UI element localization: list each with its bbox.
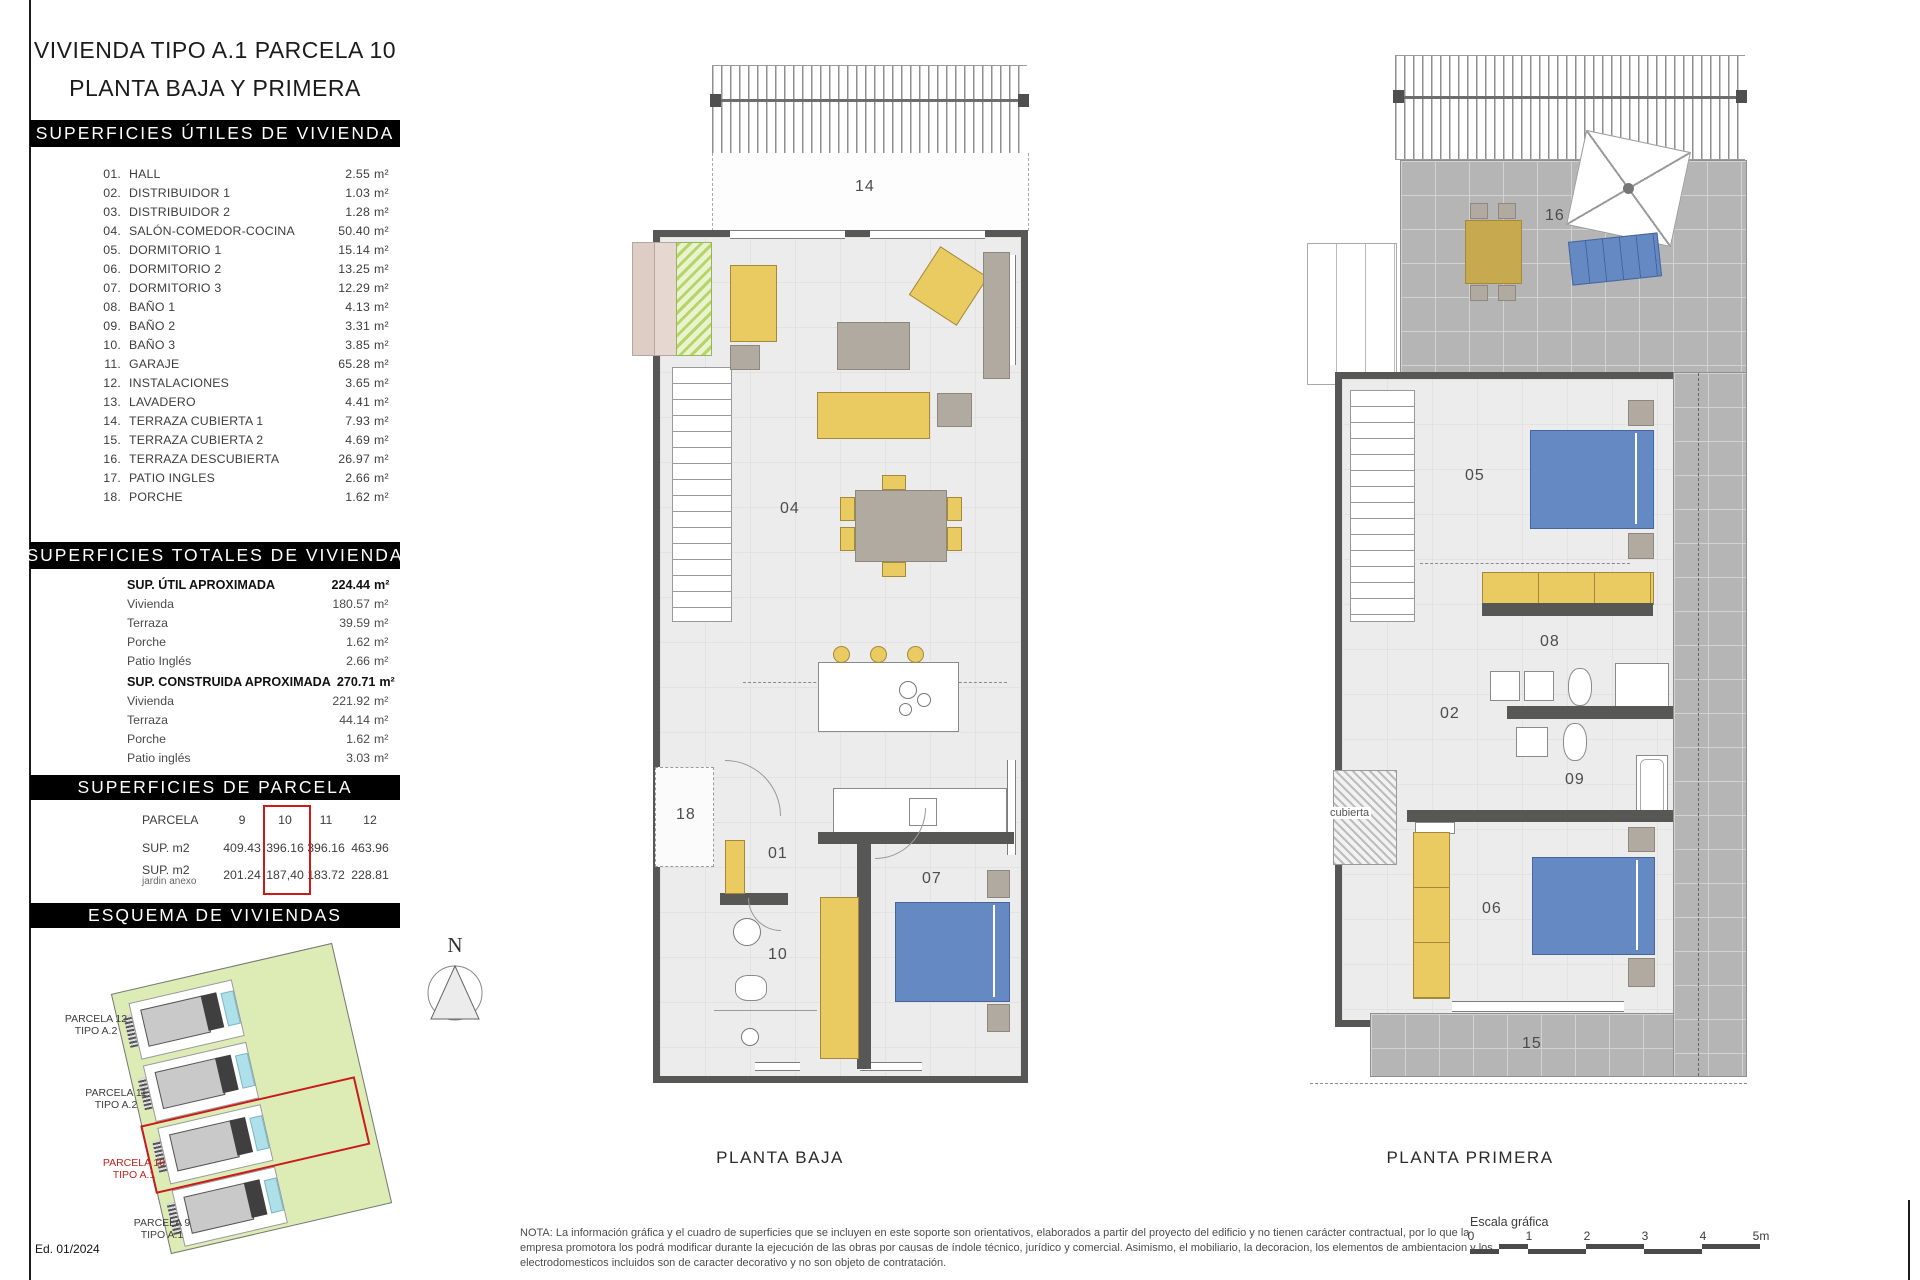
room-number: 09.	[95, 317, 121, 336]
bath1-toilet	[1568, 668, 1592, 706]
scale-bar-title: Escala gráfica	[1470, 1215, 1549, 1229]
floor-plan-planta-primera: 16 05 08 02 09 cub	[1270, 55, 1770, 1090]
room-label-05: 05	[1465, 467, 1485, 485]
totals-row-unit: m²	[370, 749, 400, 768]
wall-under-wardrobe05	[1482, 603, 1653, 616]
plan-sheet: VIVIENDA TIPO A.1 PARCELA 10 PLANTA BAJA…	[0, 0, 1920, 1280]
room-name: BAÑO 2	[129, 317, 318, 336]
sheet-title-line2: PLANTA BAJA Y PRIMERA	[30, 75, 400, 102]
room-area-unit: m²	[370, 393, 400, 412]
terrace-table	[1465, 220, 1522, 284]
entry-paving-2	[654, 242, 678, 356]
room-area-value: 4.41	[318, 393, 370, 412]
terrace-chair	[1470, 203, 1488, 219]
bath3-sink	[733, 918, 761, 946]
totals-row-unit: m²	[370, 614, 400, 633]
room-area-unit: m²	[370, 203, 400, 222]
room-name: DISTRIBUIDOR 2	[129, 203, 318, 222]
room-number: 14.	[95, 412, 121, 431]
sup-value-9: 409.43	[219, 841, 265, 855]
room-area-row: 07. DORMITORIO 3 12.29 m²	[95, 279, 400, 298]
section-header-esquema: ESQUEMA DE VIVIENDAS	[30, 903, 400, 928]
room-area-value: 65.28	[318, 355, 370, 374]
porche-area: 18	[655, 767, 714, 867]
totals-row-label: Terraza	[95, 711, 314, 730]
jardin-value-12: 228.81	[347, 868, 393, 882]
scale-tick-2: 2	[1574, 1229, 1600, 1243]
totals-row-label: Patio inglés	[95, 749, 314, 768]
room-label-01: 01	[768, 845, 788, 863]
room-area-unit: m²	[370, 165, 400, 184]
note-line-1: NOTA: La información gráfica y el cuadro…	[520, 1226, 1469, 1241]
room-area-value: 2.55	[318, 165, 370, 184]
room-area-row: 05. DORMITORIO 1 15.14 m²	[95, 241, 400, 260]
parcela-11-name: PARCELA 11	[70, 1087, 162, 1099]
bedroom1-bed	[1530, 430, 1654, 529]
room-area-row: 02. DISTRIBUIDOR 1 1.03 m²	[95, 184, 400, 203]
scale-segment	[1470, 1249, 1499, 1254]
room-number: 13.	[95, 393, 121, 412]
totals-util-group: SUP. ÚTIL APROXIMADA 224.44 m² Vivienda …	[95, 576, 400, 671]
side-table-2	[937, 393, 972, 427]
room-area-unit: m²	[370, 431, 400, 450]
room-area-unit: m²	[370, 279, 400, 298]
room-label-08: 08	[1540, 633, 1560, 651]
room-name: DORMITORIO 1	[129, 241, 318, 260]
room-area-value: 12.29	[318, 279, 370, 298]
pergola-terraza-cubierta-1	[712, 65, 1027, 155]
totals-construida-group: SUP. CONSTRUIDA APROXIMADA 270.71 m² Viv…	[95, 673, 400, 768]
pergola-terraza-descubierta	[1395, 55, 1745, 160]
nightstand	[1628, 533, 1654, 559]
hob-burner	[899, 681, 917, 699]
room-area-unit: m²	[370, 317, 400, 336]
totals-row-unit: m²	[370, 730, 400, 749]
room-area-value: 2.66	[318, 469, 370, 488]
room-number: 16.	[95, 450, 121, 469]
totals-row-unit: m²	[370, 711, 400, 730]
room-name: SALÓN-COMEDOR-COCINA	[129, 222, 318, 241]
totals-row: Vivienda 180.57 m²	[95, 595, 400, 614]
esquema-label-parcela-12: PARCELA 12 TIPO A.2	[50, 1013, 142, 1037]
totals-row: Patio Inglés 2.66 m²	[95, 652, 400, 671]
room-label-16: 16	[1545, 207, 1565, 225]
terrace-chair	[1470, 285, 1488, 301]
hob-burner	[917, 693, 931, 707]
room-area-value: 1.62	[318, 488, 370, 507]
totals-row-label: Vivienda	[95, 595, 314, 614]
jardin-row-sublabel: jardin anexo	[142, 876, 196, 887]
terrace-chair	[1498, 203, 1516, 219]
note-line-3: electrodomesticos incluidos son de carac…	[520, 1256, 946, 1271]
parcela-9-name: PARCELA 9	[116, 1217, 208, 1229]
coffee-table	[837, 322, 910, 370]
dining-chair	[947, 527, 962, 551]
north-arrow-icon	[424, 960, 486, 1024]
parasol-pole	[1622, 182, 1635, 195]
stairs-baja	[672, 367, 732, 622]
nightstand	[1628, 400, 1654, 426]
bedroom2-wardrobe	[1413, 832, 1450, 999]
pergola-rail	[712, 99, 1027, 102]
bedroom3-wardrobe	[820, 897, 859, 1059]
wall-above-bedroom2	[1407, 810, 1673, 822]
room-number: 03.	[95, 203, 121, 222]
scale-tick-3: 3	[1632, 1229, 1658, 1243]
room-label-04: 04	[780, 500, 800, 518]
shower-sink	[741, 1028, 759, 1046]
room-area-row: 16. TERRAZA DESCUBIERTA 26.97 m²	[95, 450, 400, 469]
room-area-value: 15.14	[318, 241, 370, 260]
parcela-12-name: PARCELA 12	[50, 1013, 142, 1025]
totals-row-label: Patio Inglés	[95, 652, 314, 671]
jardin-row-label: SUP. m2	[142, 863, 190, 877]
dining-chair	[840, 527, 855, 551]
room-name: INSTALACIONES	[129, 374, 318, 393]
room-number: 18.	[95, 488, 121, 507]
room-area-row: 11. GARAJE 65.28 m²	[95, 355, 400, 374]
room-area-value: 4.13	[318, 298, 370, 317]
room-area-unit: m²	[370, 241, 400, 260]
room-name: LAVADERO	[129, 393, 318, 412]
totals-row-value: 2.66	[314, 652, 370, 671]
totals-util-rows: Vivienda 180.57 m² Terraza 39.59 m² Porc…	[95, 595, 400, 671]
room-label-14: 14	[855, 178, 875, 196]
totals-construida-label: SUP. CONSTRUIDA APROXIMADA	[95, 673, 331, 692]
sheet-right-border	[1908, 1200, 1910, 1280]
bed-pillow-line	[993, 905, 995, 997]
sheet-title-line1: VIVIENDA TIPO A.1 PARCELA 10	[30, 37, 400, 64]
room-area-value: 1.03	[318, 184, 370, 203]
room-name: DISTRIBUIDOR 1	[129, 184, 318, 203]
terraza-14-area: 14	[712, 153, 1029, 231]
totals-row: Vivienda 221.92 m²	[95, 692, 400, 711]
totals-row: Porche 1.62 m²	[95, 730, 400, 749]
room-area-unit: m²	[370, 469, 400, 488]
room-area-unit: m²	[370, 184, 400, 203]
north-letter: N	[428, 933, 482, 958]
bath2-toilet	[1563, 723, 1587, 761]
room-name: TERRAZA CUBIERTA 1	[129, 412, 318, 431]
room-area-row: 15. TERRAZA CUBIERTA 2 4.69 m²	[95, 431, 400, 450]
bath2-sink	[1516, 727, 1548, 757]
room-area-row: 03. DISTRIBUIDOR 2 1.28 m²	[95, 203, 400, 222]
room-area-unit: m²	[370, 412, 400, 431]
room-area-row: 14. TERRAZA CUBIERTA 1 7.93 m²	[95, 412, 400, 431]
parcela-12-tipo: TIPO A.2	[50, 1025, 142, 1037]
wall-hall-bedroom	[857, 844, 871, 1069]
totals-row-unit: m²	[370, 652, 400, 671]
bath1-sink	[1490, 671, 1520, 701]
room-area-unit: m²	[370, 355, 400, 374]
room-number: 06.	[95, 260, 121, 279]
room-name: GARAJE	[129, 355, 318, 374]
info-panel: VIVIENDA TIPO A.1 PARCELA 10 PLANTA BAJA…	[30, 25, 400, 1270]
kitchen-island	[818, 662, 959, 732]
side-terrace-strip	[1673, 372, 1747, 1077]
room-name: PORCHE	[129, 488, 318, 507]
room-area-row: 01. HALL 2.55 m²	[95, 165, 400, 184]
parcela-9-tipo: TIPO A.1	[116, 1229, 208, 1241]
totals-row: Terraza 39.59 m²	[95, 614, 400, 633]
parcela-10-tipo: TIPO A.1	[88, 1169, 180, 1181]
room-area-unit: m²	[370, 488, 400, 507]
hall-cabinet	[725, 840, 745, 894]
room-number: 12.	[95, 374, 121, 393]
edition-label: Ed. 01/2024	[35, 1242, 100, 1256]
scale-segment	[1499, 1244, 1528, 1249]
room-label-18: 18	[676, 806, 696, 824]
room-number: 05.	[95, 241, 121, 260]
totals-row-label: Porche	[95, 730, 314, 749]
room-number: 15.	[95, 431, 121, 450]
room-name: PATIO INGLES	[129, 469, 318, 488]
caption-planta-primera: PLANTA PRIMERA	[1385, 1148, 1555, 1168]
plot-boundary-dashed	[1310, 1083, 1747, 1084]
room05-boundary-dashed	[1420, 563, 1630, 564]
bedroom2-bed	[1532, 857, 1655, 955]
bar-stool	[833, 646, 850, 663]
room-number: 02.	[95, 184, 121, 203]
room-area-row: 17. PATIO INGLES 2.66 m²	[95, 469, 400, 488]
pergola-post-right	[1736, 90, 1747, 103]
bar-stool	[907, 646, 924, 663]
scale-tick-4: 4	[1690, 1229, 1716, 1243]
esquema-label-parcela-10: PARCELA 10 TIPO A.1	[88, 1157, 180, 1181]
room-area-value: 3.31	[318, 317, 370, 336]
room-number: 01.	[95, 165, 121, 184]
room-area-value: 26.97	[318, 450, 370, 469]
dining-chair	[947, 497, 962, 521]
room-label-06: 06	[1482, 900, 1502, 918]
shower-partition	[714, 1010, 817, 1011]
room-name: DORMITORIO 2	[129, 260, 318, 279]
bathtub-inner-line	[1640, 759, 1664, 815]
room-area-row: 18. PORCHE 1.62 m²	[95, 488, 400, 507]
cubierta-label: cubierta	[1328, 807, 1371, 819]
totals-row-label: Vivienda	[95, 692, 314, 711]
room-label-07: 07	[922, 870, 942, 888]
pergola-post-left	[1393, 90, 1404, 103]
floor-plan-planta-baja: 14 04	[630, 60, 1030, 1095]
room-area-unit: m²	[370, 260, 400, 279]
room-area-value: 50.40	[318, 222, 370, 241]
sofa-two-seat	[730, 265, 777, 342]
room-name: DORMITORIO 3	[129, 279, 318, 298]
note-line-2: empresa promotora los podrá modificar du…	[520, 1241, 1493, 1256]
section-header-superficies-parcela: SUPERFICIES DE PARCELA	[30, 775, 400, 800]
totals-construida-head: SUP. CONSTRUIDA APROXIMADA 270.71 m²	[95, 673, 400, 692]
sup-row-label: SUP. m2	[142, 841, 190, 855]
totals-row: Porche 1.62 m²	[95, 633, 400, 652]
totals-row: Terraza 44.14 m²	[95, 711, 400, 730]
room-area-value: 4.69	[318, 431, 370, 450]
totals-row-label: Porche	[95, 633, 314, 652]
room-area-unit: m²	[370, 450, 400, 469]
totals-row-unit: m²	[370, 633, 400, 652]
totals-row-value: 39.59	[314, 614, 370, 633]
section-header-superficies-totales: SUPERFICIES TOTALES DE VIVIENDA	[30, 542, 400, 569]
parcela-col-12: 12	[347, 813, 393, 827]
sup-value-12: 463.96	[347, 841, 393, 855]
esquema-label-parcela-11: PARCELA 11 TIPO A.2	[70, 1087, 162, 1111]
section-header-superficies-utiles: SUPERFICIES ÚTILES DE VIVIENDA	[30, 120, 400, 147]
totals-util-label: SUP. ÚTIL APROXIMADA	[95, 576, 314, 595]
bed-pillow-line	[1635, 433, 1637, 524]
entry-green-hatch	[676, 242, 712, 356]
pergola-post-left	[710, 94, 721, 107]
parcela-11-tipo: TIPO A.2	[70, 1099, 162, 1111]
nightstand	[1628, 958, 1655, 987]
room-area-value: 13.25	[318, 260, 370, 279]
totals-row: Patio inglés 3.03 m²	[95, 749, 400, 768]
window-top-2	[870, 230, 985, 239]
room-area-value: 1.28	[318, 203, 370, 222]
parcela-10-highlight-box	[263, 805, 311, 895]
dining-chair	[882, 475, 906, 490]
parcela-row-label: PARCELA	[142, 813, 199, 827]
window-bedroom2	[1452, 1001, 1624, 1012]
tv-cabinet	[983, 252, 1010, 379]
totals-row-value: 221.92	[314, 692, 370, 711]
totals-row-value: 3.03	[314, 749, 370, 768]
room-area-unit: m²	[370, 374, 400, 393]
dining-chair	[840, 497, 855, 521]
dining-chair	[882, 562, 906, 577]
room-name: BAÑO 3	[129, 336, 318, 355]
totals-row-unit: m²	[370, 595, 400, 614]
totals-construida-rows: Vivienda 221.92 m² Terraza 44.14 m² Porc…	[95, 692, 400, 768]
room-name: BAÑO 1	[129, 298, 318, 317]
room-area-unit: m²	[370, 336, 400, 355]
parcela-10-name: PARCELA 10	[88, 1157, 180, 1169]
room-number: 17.	[95, 469, 121, 488]
totals-row-value: 1.62	[314, 633, 370, 652]
totals-row-value: 1.62	[314, 730, 370, 749]
room-label-02: 02	[1440, 705, 1460, 723]
bedroom1-wardrobe	[1482, 572, 1654, 605]
room-area-value: 7.93	[318, 412, 370, 431]
room-label-10: 10	[768, 946, 788, 964]
scale-segment	[1644, 1249, 1702, 1254]
room-name: TERRAZA DESCUBIERTA	[129, 450, 318, 469]
bed-pillow-line	[1636, 860, 1638, 950]
room-number: 04.	[95, 222, 121, 241]
room-number: 11.	[95, 355, 121, 374]
scale-bar	[1470, 1244, 1760, 1254]
totals-util-unit: m²	[370, 576, 400, 595]
nightstand	[987, 870, 1010, 898]
totals-util-head: SUP. ÚTIL APROXIMADA 224.44 m²	[95, 576, 400, 595]
totals-row-label: Terraza	[95, 614, 314, 633]
scale-tick-1: 1	[1516, 1229, 1542, 1243]
wall-bath1-bath2	[1507, 706, 1673, 719]
scale-segment	[1528, 1249, 1586, 1254]
nightstand	[1628, 827, 1655, 852]
totals-util-value: 224.44	[314, 576, 370, 595]
room-number: 08.	[95, 298, 121, 317]
room-area-unit: m²	[370, 298, 400, 317]
totals-row-unit: m²	[370, 692, 400, 711]
scale-tick-5: 5m	[1748, 1229, 1774, 1243]
room-areas-list: 01. HALL 2.55 m² 02. DISTRIBUIDOR 1 1.03…	[95, 165, 400, 507]
room-area-row: 12. INSTALACIONES 3.65 m²	[95, 374, 400, 393]
room-area-row: 06. DORMITORIO 2 13.25 m²	[95, 260, 400, 279]
totals-construida-value: 270.71	[331, 673, 375, 692]
bar-stool	[870, 646, 887, 663]
caption-planta-baja: PLANTA BAJA	[700, 1148, 860, 1168]
totals-row-value: 180.57	[314, 595, 370, 614]
room-label-09: 09	[1565, 771, 1585, 789]
window-top-1	[730, 230, 845, 239]
bath3-toilet	[735, 975, 767, 1001]
totals-row-value: 44.14	[314, 711, 370, 730]
pergola-rail	[1395, 96, 1745, 99]
room-number: 10.	[95, 336, 121, 355]
side-table	[730, 345, 760, 370]
exterior-stair-railing	[1307, 243, 1397, 385]
room-name: HALL	[129, 165, 318, 184]
room-area-row: 08. BAÑO 1 4.13 m²	[95, 298, 400, 317]
room-area-value: 3.65	[318, 374, 370, 393]
stairs-primera	[1350, 390, 1415, 622]
room-area-row: 10. BAÑO 3 3.85 m²	[95, 336, 400, 355]
esquema-label-parcela-9: PARCELA 9 TIPO A.1	[116, 1217, 208, 1241]
terrace-chair	[1498, 285, 1516, 301]
totals-construida-unit: m²	[375, 673, 400, 692]
jardin-value-9: 201.24	[219, 868, 265, 882]
pergola-post-right	[1018, 94, 1029, 107]
sofa-three-seat	[817, 392, 930, 439]
nightstand	[987, 1004, 1010, 1032]
hob-burner	[899, 703, 912, 716]
strip-dashed-line	[1698, 373, 1699, 1076]
room-area-unit: m²	[370, 222, 400, 241]
room-label-15: 15	[1522, 1035, 1542, 1053]
room-area-row: 09. BAÑO 2 3.31 m²	[95, 317, 400, 336]
bedroom3-bed	[895, 902, 1010, 1002]
bath1-sink	[1524, 671, 1554, 701]
scale-segment	[1702, 1244, 1760, 1249]
room-number: 07.	[95, 279, 121, 298]
room-area-row: 13. LAVADERO 4.41 m²	[95, 393, 400, 412]
scale-tick-0: 0	[1458, 1229, 1484, 1243]
parcela-col-9: 9	[219, 813, 265, 827]
window-bottom-1	[755, 1062, 800, 1071]
sun-lounger	[1568, 232, 1662, 285]
room-name: TERRAZA CUBIERTA 2	[129, 431, 318, 450]
room-area-row: 04. SALÓN-COMEDOR-COCINA 50.40 m²	[95, 222, 400, 241]
dining-table	[855, 490, 947, 562]
scale-segment	[1586, 1244, 1644, 1249]
room-area-value: 3.85	[318, 336, 370, 355]
